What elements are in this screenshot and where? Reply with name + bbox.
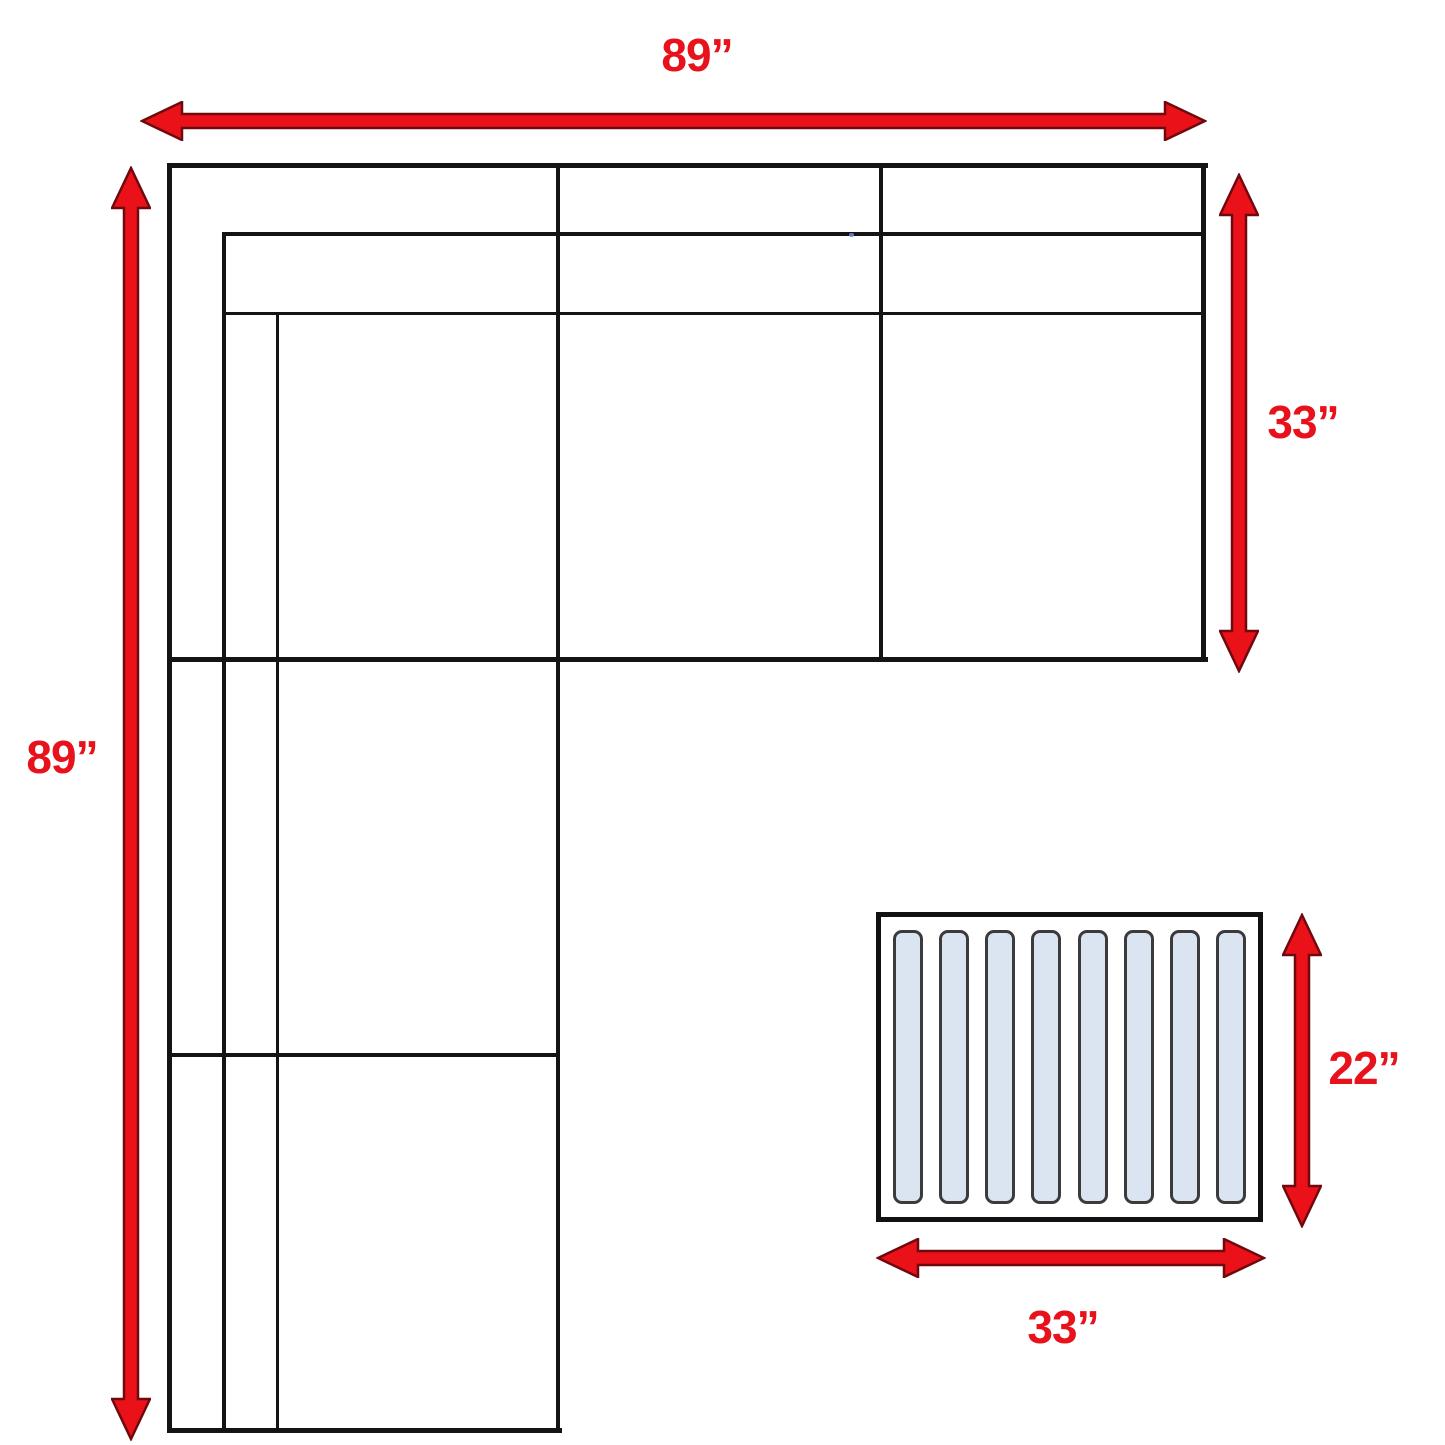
ottoman-depth-label: 22”	[1328, 1045, 1399, 1091]
ottoman-slat	[939, 930, 969, 1204]
ottoman	[876, 912, 1263, 1222]
sofa-seat-divider	[879, 163, 883, 661]
ottoman-width-arrow	[876, 1238, 1266, 1278]
sofa-top-edge	[167, 163, 1208, 168]
ottoman-slat	[1078, 930, 1108, 1204]
furniture-dimension-diagram: 89” 89” 33” 22” 33”	[0, 0, 1445, 1445]
sofa-corner-seam	[167, 657, 1208, 662]
sofa-left-column-right-edge	[556, 163, 560, 1432]
ottoman-slat	[1216, 930, 1246, 1204]
sofa-left-edge	[167, 163, 172, 1433]
ottoman-slat	[1124, 930, 1154, 1204]
sofa-width-label: 89”	[661, 32, 732, 78]
ottoman-slat	[1031, 930, 1061, 1204]
ottoman-slat	[1170, 930, 1200, 1204]
sofa-length-label: 89”	[26, 734, 97, 780]
ottoman-width-label: 33”	[1027, 1304, 1098, 1350]
sofa-right-edge	[1201, 163, 1206, 662]
sofa-depth-arrow	[1219, 173, 1259, 673]
sofa-bottom-edge	[167, 1428, 562, 1433]
sofa-length-arrow	[111, 166, 151, 1441]
ottoman-slat	[893, 930, 923, 1204]
sofa-left-arm-line	[222, 232, 226, 1432]
sofa-depth-label: 33”	[1267, 399, 1338, 445]
sofa-backrest-line	[222, 232, 1206, 236]
ottoman-slats	[881, 917, 1258, 1217]
ottoman-depth-arrow	[1282, 913, 1322, 1228]
sofa-back-cushion-line	[222, 312, 1206, 315]
stray-blue-mark	[849, 233, 854, 237]
sofa-width-arrow	[140, 101, 1207, 141]
ottoman-slat	[985, 930, 1015, 1204]
sofa-left-arm-inner-line	[276, 312, 279, 1432]
